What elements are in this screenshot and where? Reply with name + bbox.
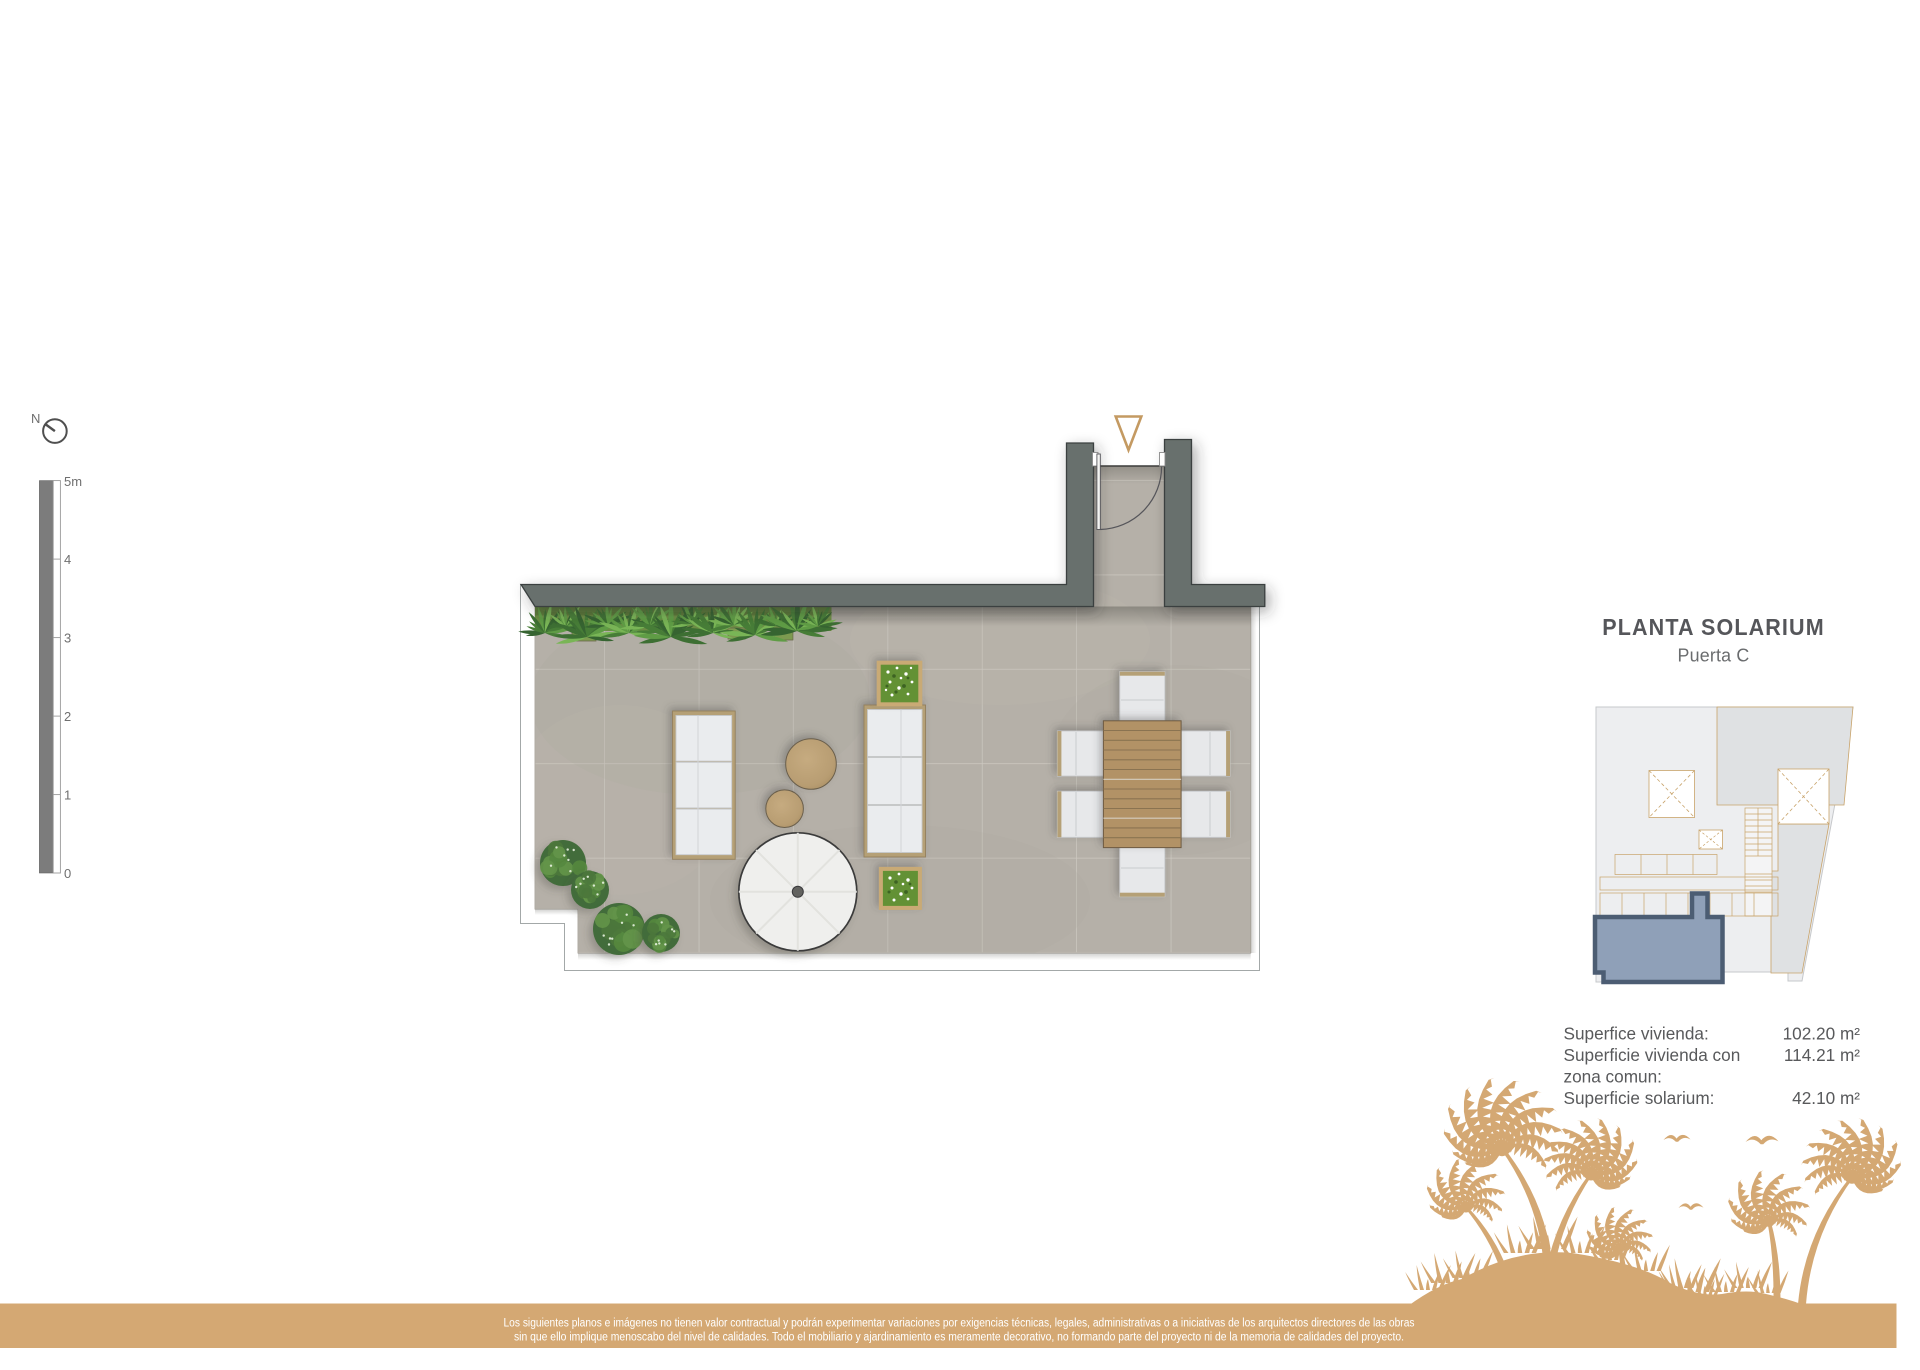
- svg-text:1: 1: [64, 788, 71, 803]
- svg-text:Los siguientes planos e imágen: Los siguientes planos e imágenes no tien…: [504, 1318, 1415, 1330]
- svg-text:42.10 m²: 42.10 m²: [1792, 1088, 1860, 1108]
- svg-text:Superficie solarium:: Superficie solarium:: [1564, 1088, 1715, 1108]
- svg-text:4: 4: [64, 552, 71, 567]
- svg-text:PLANTA SOLARIUM: PLANTA SOLARIUM: [1602, 614, 1825, 640]
- svg-text:2: 2: [64, 709, 71, 724]
- svg-text:sin que ello implique menoscab: sin que ello implique menoscabo del nive…: [514, 1332, 1404, 1344]
- svg-text:Superficie vivienda con: Superficie vivienda con: [1564, 1045, 1741, 1065]
- svg-text:zona comun:: zona comun:: [1564, 1067, 1662, 1087]
- svg-text:0: 0: [64, 866, 71, 881]
- svg-text:Superfice vivienda:: Superfice vivienda:: [1564, 1024, 1709, 1044]
- svg-text:102.20 m²: 102.20 m²: [1783, 1024, 1861, 1044]
- svg-text:5m: 5m: [64, 474, 82, 489]
- svg-text:Puerta C: Puerta C: [1678, 646, 1750, 666]
- svg-text:N: N: [31, 411, 40, 426]
- svg-text:3: 3: [64, 631, 71, 646]
- svg-text:114.21 m²: 114.21 m²: [1784, 1045, 1860, 1065]
